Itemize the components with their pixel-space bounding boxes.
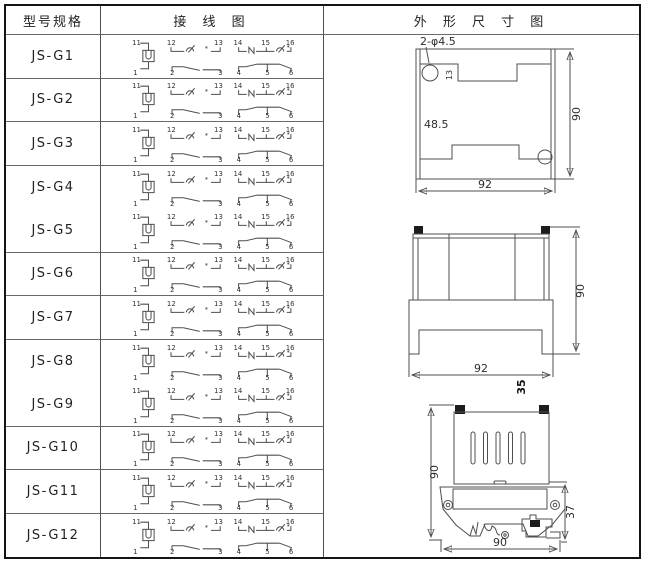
terminal-label: 1 (133, 243, 137, 251)
terminal-label: 13 (214, 213, 223, 221)
terminal-label: 11 (132, 256, 141, 264)
wiring-cell: 11 12 13 14 15 16 1 2 3 4 5 6 * * (101, 253, 324, 297)
terminal-label: 11 (132, 344, 141, 352)
terminal-label: 12 (167, 300, 176, 308)
terminal-label: 2 (170, 112, 174, 120)
terminal-label: 3 (218, 156, 222, 164)
wiring-lines (140, 348, 292, 377)
contact-asterisk: * (205, 437, 208, 444)
terminal-label: 13 (214, 344, 223, 352)
model-cell: JS-G12 (6, 514, 101, 558)
model-label: JS-G2 (31, 92, 74, 107)
wiring-lines (140, 260, 292, 289)
wiring-cell: 11 12 13 14 15 16 1 2 3 4 5 6 * * (101, 79, 324, 123)
model-label: JS-G12 (27, 528, 80, 543)
wiring-cell: 11 12 13 14 15 16 1 2 3 4 5 6 * * (101, 122, 324, 166)
terminal-label: 4 (237, 69, 242, 77)
terminal-label: 5 (265, 330, 269, 338)
terminal-label: 1 (133, 548, 137, 556)
terminal-label: 15 (261, 256, 270, 264)
terminal-label: 5 (265, 200, 269, 208)
wiring-diagram: 11 12 13 14 15 16 1 2 3 4 5 6 * * (128, 123, 296, 164)
terminal-label: 6 (289, 243, 293, 251)
wiring-lines (140, 130, 292, 159)
terminal-label: 11 (132, 213, 141, 221)
wiring-diagram: 11 12 13 14 15 16 1 2 3 4 5 6 * * (128, 79, 296, 120)
delay-contact-symbol (249, 265, 254, 271)
terminal-label: 11 (132, 430, 141, 438)
clamp-hook (470, 522, 478, 536)
header-model-column: 型号规格 (6, 6, 101, 35)
side-width-label: 90 (493, 536, 507, 549)
wiring-cell: 11 12 13 14 15 16 1 2 3 4 5 6 * * (101, 296, 324, 340)
terminal-label: 1 (133, 504, 137, 512)
terminal-label: 14 (234, 518, 243, 526)
coil-symbol (143, 50, 154, 61)
terminal-label: 2 (170, 330, 174, 338)
terminal-label: 3 (218, 460, 222, 468)
terminal-label: 1 (133, 374, 137, 382)
terminal-labels: 11 12 13 14 15 16 1 2 3 4 5 6 * * (132, 82, 295, 120)
wiring-diagram: 11 12 13 14 15 16 1 2 3 4 5 6 * * (128, 341, 296, 382)
delay-contact-symbol (249, 47, 254, 53)
wiring-cell: 11 12 13 14 15 16 1 2 3 4 5 6 * * (101, 209, 324, 253)
terminal-label: 2 (170, 417, 174, 425)
contact-asterisk: * (205, 89, 208, 96)
terminal-label: 4 (237, 200, 242, 208)
terminal-label: 13 (214, 387, 223, 395)
cutout-height-label: 90 (570, 107, 583, 121)
terminal-label: 3 (218, 286, 222, 294)
contact-asterisk: * (287, 262, 290, 269)
terminal-label: 2 (170, 69, 174, 77)
wiring-lines (140, 217, 292, 246)
clamp-spring (484, 524, 500, 535)
wiring-lines (140, 434, 292, 463)
terminal-label: 6 (289, 460, 293, 468)
terminal-label: 11 (132, 518, 141, 526)
terminal-label: 3 (218, 112, 222, 120)
notch-depth-label: 13 (445, 70, 454, 80)
terminal-label: 11 (132, 300, 141, 308)
wiring-diagram: 11 12 13 14 15 16 1 2 3 4 5 6 * * (128, 36, 296, 77)
model-label: JS-G11 (27, 484, 80, 499)
terminal-label: 5 (265, 156, 269, 164)
terminal-label: 6 (289, 504, 293, 512)
side-view-drawing: 90 37 90 (428, 405, 577, 552)
terminal-label: 6 (289, 156, 293, 164)
terminal-label: 12 (167, 170, 176, 178)
wiring-diagram: 11 12 13 14 15 16 1 2 3 4 5 6 * * (128, 253, 296, 294)
terminal-label: 12 (167, 39, 176, 47)
terminal-label: 3 (218, 200, 222, 208)
terminal-label: 14 (234, 82, 243, 90)
contact-asterisk: * (287, 436, 290, 443)
terminal-label: 3 (218, 69, 222, 77)
terminal-label: 1 (133, 156, 137, 164)
corner-tab-right (541, 226, 550, 234)
wiring-lines (140, 522, 292, 551)
wiring-lines (140, 174, 292, 203)
terminal-label: 15 (261, 387, 270, 395)
terminal-labels: 11 12 13 14 15 16 1 2 3 4 5 6 * * (132, 344, 295, 382)
model-label: JS-G5 (31, 223, 74, 238)
terminal-labels: 11 12 13 14 15 16 1 2 3 4 5 6 * * (132, 430, 295, 468)
model-label: JS-G10 (27, 440, 80, 455)
coil-symbol (143, 355, 154, 366)
terminal-label: 14 (234, 170, 243, 178)
wiring-diagram: 11 12 13 14 15 16 1 2 3 4 5 6 * * (128, 515, 296, 556)
terminal-label: 1 (133, 330, 137, 338)
terminal-labels: 11 12 13 14 15 16 1 2 3 4 5 6 * * (132, 387, 295, 425)
terminal-label: 3 (218, 417, 222, 425)
terminal-label: 4 (237, 460, 242, 468)
model-cell: JS-G9 (6, 383, 101, 427)
wiring-lines (140, 86, 292, 115)
rail-height-label: 37 (564, 505, 577, 519)
contact-asterisk: * (287, 523, 290, 530)
terminal-label: 14 (234, 474, 243, 482)
model-cell: JS-G8 (6, 340, 101, 384)
terminal-label: 12 (167, 213, 176, 221)
model-label: JS-G9 (31, 397, 74, 412)
delay-contact-symbol (249, 482, 254, 488)
wiring-cell: 11 12 13 14 15 16 1 2 3 4 5 6 * * (101, 470, 324, 514)
outline-dimension-drawings: 2-φ4.5 13 48.5 90 92 (324, 35, 639, 554)
outline-drawings-cell: 2-φ4.5 13 48.5 90 92 (324, 35, 639, 557)
terminal-label: 12 (167, 126, 176, 134)
terminal-label: 6 (289, 374, 293, 382)
terminal-label: 1 (133, 286, 137, 294)
header-outline-column: 外 形 尺 寸 图 (324, 6, 639, 35)
model-cell: JS-G11 (6, 470, 101, 514)
model-label: JS-G3 (31, 136, 74, 151)
terminal-label: 5 (265, 548, 269, 556)
wiring-cell: 11 12 13 14 15 16 1 2 3 4 5 6 * * (101, 427, 324, 471)
terminal-labels: 11 12 13 14 15 16 1 2 3 4 5 6 * * (132, 39, 295, 77)
terminal-label: 5 (265, 504, 269, 512)
wiring-diagram: 11 12 13 14 15 16 1 2 3 4 5 6 * * (128, 210, 296, 251)
contact-asterisk: * (287, 175, 290, 182)
terminal-label: 5 (265, 286, 269, 294)
terminal-label: 5 (265, 417, 269, 425)
model-cell: JS-G5 (6, 209, 101, 253)
terminal-label: 14 (234, 344, 243, 352)
coil-symbol (143, 137, 154, 148)
contact-asterisk: * (205, 45, 208, 52)
terminal-label: 13 (214, 170, 223, 178)
terminal-labels: 11 12 13 14 15 16 1 2 3 4 5 6 * * (132, 213, 295, 251)
wiring-diagram: 11 12 13 14 15 16 1 2 3 4 5 6 * * (128, 384, 296, 425)
terminal-label: 15 (261, 213, 270, 221)
terminal-label: 14 (234, 39, 243, 47)
terminal-label: 2 (170, 460, 174, 468)
terminal-labels: 11 12 13 14 15 16 1 2 3 4 5 6 * * (132, 126, 295, 164)
coil-symbol (143, 442, 154, 453)
coil-symbol (143, 181, 154, 192)
front-width-label: 92 (474, 362, 488, 375)
terminal-label: 13 (214, 300, 223, 308)
terminal-label: 13 (214, 82, 223, 90)
terminal-label: 3 (218, 504, 222, 512)
terminal-label: 13 (214, 39, 223, 47)
terminal-label: 6 (289, 286, 293, 294)
terminal-label: 14 (234, 387, 243, 395)
terminal-label: 4 (237, 156, 242, 164)
terminal-label: 12 (167, 518, 176, 526)
contact-asterisk: * (287, 44, 290, 51)
vent-slot (521, 432, 525, 464)
header-wiring-column: 接 线 图 (101, 6, 324, 35)
vent-slot (471, 432, 475, 464)
mounting-hole-bottom-right (538, 150, 552, 164)
terminal-label: 4 (237, 243, 242, 251)
terminal-label: 5 (265, 460, 269, 468)
delay-contact-symbol (249, 526, 254, 532)
delay-contact-symbol (249, 395, 254, 401)
terminal-label: 4 (237, 548, 242, 556)
terminal-label: 11 (132, 39, 141, 47)
coil-symbol (143, 529, 154, 540)
terminal-label: 6 (289, 548, 293, 556)
terminal-label: 6 (289, 330, 293, 338)
panel-cutout-drawing: 2-φ4.5 13 48.5 90 92 (416, 35, 583, 193)
vent-slot (484, 432, 488, 464)
holes-dimension-label: 2-φ4.5 (420, 35, 456, 48)
terminal-label: 4 (237, 504, 242, 512)
header-model-label: 型号规格 (23, 11, 83, 30)
coil-symbol (143, 94, 154, 105)
wiring-lines (140, 43, 292, 72)
terminal-labels: 11 12 13 14 15 16 1 2 3 4 5 6 * * (132, 170, 295, 208)
wiring-cell: 11 12 13 14 15 16 1 2 3 4 5 6 * * (101, 166, 324, 210)
contact-asterisk: * (205, 132, 208, 139)
model-cell: JS-G10 (6, 427, 101, 471)
terminal-label: 6 (289, 200, 293, 208)
contact-asterisk: * (205, 524, 208, 531)
contact-asterisk: * (287, 479, 290, 486)
delay-contact-symbol (249, 439, 254, 445)
inner-offset-label: 48.5 (424, 118, 449, 131)
terminal-label: 5 (265, 374, 269, 382)
terminal-label: 1 (133, 69, 137, 77)
terminal-label: 2 (170, 548, 174, 556)
wiring-cell: 11 12 13 14 15 16 1 2 3 4 5 6 * * (101, 340, 324, 384)
terminal-label: 12 (167, 430, 176, 438)
contact-asterisk: * (205, 350, 208, 357)
clamp-screw-right (551, 501, 560, 510)
mounting-hole-top-left (422, 65, 438, 81)
coil-symbol (143, 485, 154, 496)
front-view-drawing: 90 92 35 (409, 226, 587, 395)
terminal-label: 13 (214, 256, 223, 264)
wiring-diagram: 11 12 13 14 15 16 1 2 3 4 5 6 * * (128, 297, 296, 338)
terminal-label: 2 (170, 200, 174, 208)
terminal-label: 5 (265, 112, 269, 120)
contact-asterisk: * (287, 218, 290, 225)
terminal-label: 2 (170, 374, 174, 382)
model-label: JS-G8 (31, 354, 74, 369)
model-cell: JS-G3 (6, 122, 101, 166)
terminal-label: 15 (261, 300, 270, 308)
terminal-label: 15 (261, 170, 270, 178)
terminal-label: 12 (167, 344, 176, 352)
model-cell: JS-G7 (6, 296, 101, 340)
corner-tab-left (414, 226, 423, 234)
terminal-label: 6 (289, 112, 293, 120)
terminal-labels: 11 12 13 14 15 16 1 2 3 4 5 6 * * (132, 474, 295, 512)
coil-symbol (143, 311, 154, 322)
terminal-label: 6 (289, 69, 293, 77)
wiring-diagram: 11 12 13 14 15 16 1 2 3 4 5 6 * * (128, 427, 296, 468)
model-cell: JS-G1 (6, 35, 101, 79)
header-outline-label: 外 形 尺 寸 图 (414, 11, 550, 30)
terminal-label: 3 (218, 330, 222, 338)
delay-contact-symbol (249, 178, 254, 184)
terminal-label: 13 (214, 518, 223, 526)
terminal-label: 3 (218, 243, 222, 251)
side-corner-tab-right (539, 405, 549, 414)
terminal-label: 3 (218, 548, 222, 556)
terminal-label: 15 (261, 39, 270, 47)
wiring-cell: 11 12 13 14 15 16 1 2 3 4 5 6 * * (101, 514, 324, 558)
side-corner-tab-left (455, 405, 465, 414)
contact-asterisk: * (205, 219, 208, 226)
terminal-label: 12 (167, 474, 176, 482)
contact-asterisk: * (205, 480, 208, 487)
terminal-label: 4 (237, 330, 242, 338)
terminal-label: 13 (214, 430, 223, 438)
terminal-label: 12 (167, 387, 176, 395)
terminal-label: 11 (132, 474, 141, 482)
terminal-label: 12 (167, 82, 176, 90)
terminal-label: 3 (218, 374, 222, 382)
terminal-label: 14 (234, 300, 243, 308)
coil-symbol (143, 224, 154, 235)
relay-spec-table: 型号规格 接 线 图 外 形 尺 寸 图 2-φ4.5 13 4 (4, 4, 641, 559)
terminal-label: 2 (170, 243, 174, 251)
terminal-label: 1 (133, 460, 137, 468)
terminal-label: 1 (133, 200, 137, 208)
terminal-label: 11 (132, 170, 141, 178)
model-label: JS-G4 (31, 180, 74, 195)
front-height-label: 90 (574, 284, 587, 298)
terminal-label: 6 (289, 417, 293, 425)
delay-contact-symbol (249, 352, 254, 358)
vent-slot (496, 432, 500, 464)
contact-asterisk: * (205, 393, 208, 400)
terminal-label: 14 (234, 430, 243, 438)
terminal-label: 2 (170, 156, 174, 164)
side-height-label: 90 (428, 465, 441, 479)
terminal-label: 14 (234, 256, 243, 264)
terminal-label: 15 (261, 430, 270, 438)
model-label: JS-G1 (31, 49, 74, 64)
wiring-diagram: 11 12 13 14 15 16 1 2 3 4 5 6 * * (128, 471, 296, 512)
delay-contact-symbol (249, 134, 254, 140)
coil-symbol (143, 268, 154, 279)
terminal-label: 15 (261, 518, 270, 526)
terminal-label: 13 (214, 126, 223, 134)
terminal-label: 5 (265, 69, 269, 77)
model-cell: JS-G2 (6, 79, 101, 123)
terminal-label: 5 (265, 243, 269, 251)
wiring-lines (140, 391, 292, 420)
contact-asterisk: * (287, 131, 290, 138)
terminal-label: 13 (214, 474, 223, 482)
terminal-label: 15 (261, 474, 270, 482)
terminal-label: 4 (237, 374, 242, 382)
clamp-screw-left (444, 501, 453, 510)
terminal-label: 15 (261, 126, 270, 134)
terminal-label: 11 (132, 82, 141, 90)
terminal-label: 12 (167, 256, 176, 264)
contact-asterisk: * (205, 306, 208, 313)
terminal-label: 4 (237, 417, 242, 425)
model-label: JS-G7 (31, 310, 74, 325)
terminal-label: 1 (133, 112, 137, 120)
terminal-labels: 11 12 13 14 15 16 1 2 3 4 5 6 * * (132, 518, 295, 556)
contact-asterisk: * (287, 349, 290, 356)
wiring-lines (140, 304, 292, 333)
terminal-label: 4 (237, 286, 242, 294)
terminal-label: 2 (170, 504, 174, 512)
contact-asterisk: * (205, 176, 208, 183)
model-label: JS-G6 (31, 266, 74, 281)
cutout-width-label: 92 (478, 178, 492, 191)
delay-contact-symbol (249, 221, 254, 227)
terminal-label: 15 (261, 82, 270, 90)
terminal-label: 11 (132, 126, 141, 134)
terminal-label: 15 (261, 344, 270, 352)
model-cell: JS-G6 (6, 253, 101, 297)
model-cell: JS-G4 (6, 166, 101, 210)
terminal-label: 4 (237, 112, 242, 120)
coil-symbol (143, 398, 154, 409)
delay-contact-symbol (249, 91, 254, 97)
terminal-label: 1 (133, 417, 137, 425)
terminal-label: 2 (170, 286, 174, 294)
front-depth-label: 35 (515, 379, 528, 394)
wiring-cell: 11 12 13 14 15 16 1 2 3 4 5 6 * * (101, 383, 324, 427)
terminal-label: 11 (132, 387, 141, 395)
contact-asterisk: * (287, 392, 290, 399)
wiring-diagram: 11 12 13 14 15 16 1 2 3 4 5 6 * * (128, 167, 296, 208)
terminal-label: 14 (234, 126, 243, 134)
contact-asterisk: * (205, 263, 208, 270)
wiring-lines (140, 478, 292, 507)
terminal-labels: 11 12 13 14 15 16 1 2 3 4 5 6 * * (132, 300, 295, 338)
terminal-label: 14 (234, 213, 243, 221)
contact-asterisk: * (287, 305, 290, 312)
wiring-cell: 11 12 13 14 15 16 1 2 3 4 5 6 * * (101, 35, 324, 79)
delay-contact-symbol (249, 308, 254, 314)
contact-asterisk: * (287, 88, 290, 95)
terminal-labels: 11 12 13 14 15 16 1 2 3 4 5 6 * * (132, 256, 295, 294)
header-wiring-label: 接 线 图 (173, 11, 250, 30)
vent-slot (509, 432, 513, 464)
